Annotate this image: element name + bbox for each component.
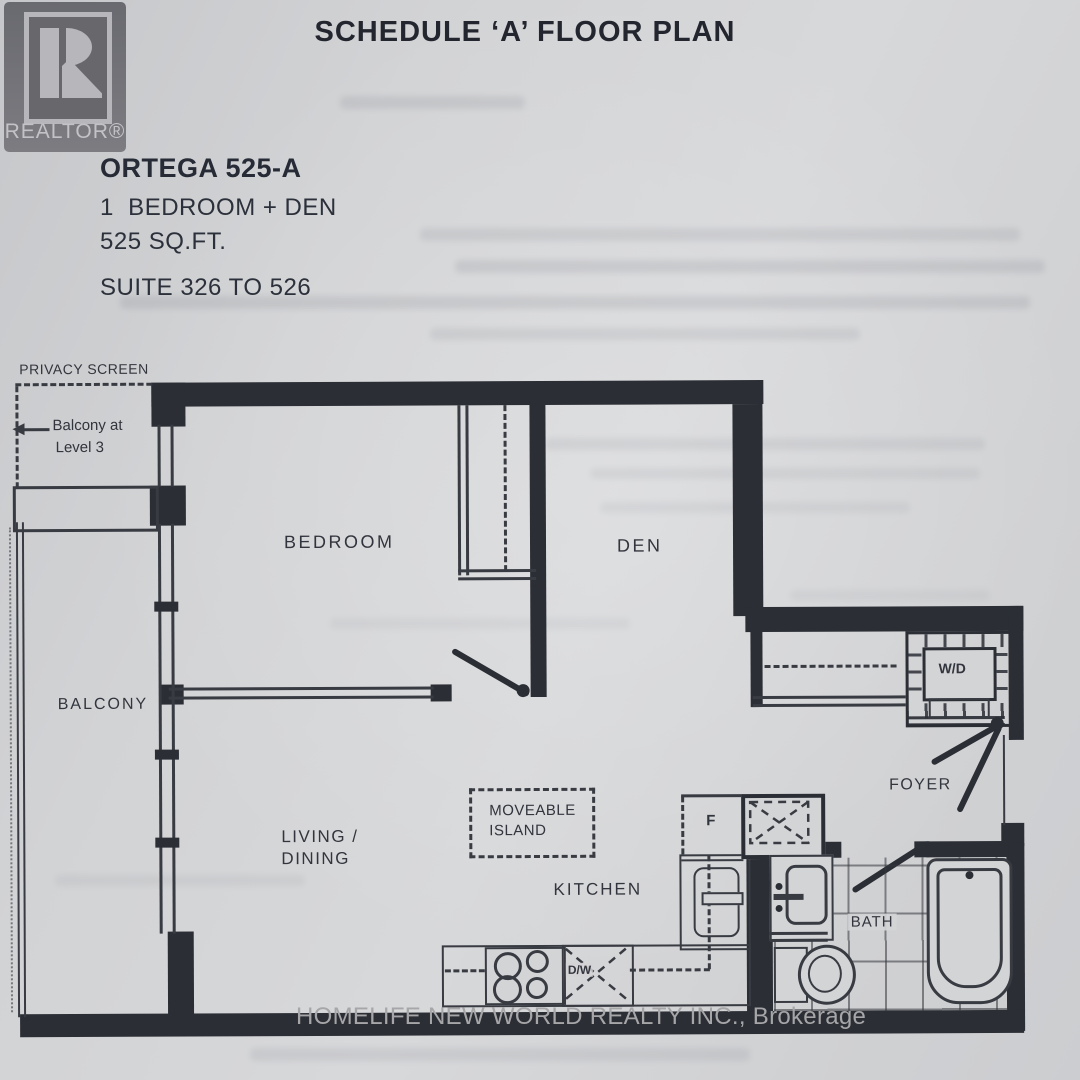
wall-top (151, 380, 763, 407)
privacy-screen-line-top (15, 383, 152, 387)
wd-label: W/D (939, 660, 966, 676)
shaft-x-mark (745, 798, 813, 847)
toilet-seat (808, 955, 842, 993)
balcony-arrow-head (12, 423, 24, 435)
island-label-line2: ISLAND (489, 822, 546, 839)
stove-burner (493, 975, 522, 1004)
bathtub (926, 858, 1013, 1004)
fridge-label: F (706, 812, 715, 829)
wall-den-east (732, 404, 763, 616)
privacy-screen-label: PRIVACY SCREEN (19, 361, 148, 378)
island-label-line1: MOVEABLE (489, 802, 576, 819)
window-mullion (155, 838, 179, 848)
living-dining-label-line2: DINING (281, 849, 350, 869)
dishwasher-label: D/W (566, 963, 593, 977)
living-dining-label-line1: LIVING / (281, 827, 358, 847)
scanned-floor-plan-page: REALTOR® SCHEDULE ‘A’ FLOOR PLAN ORTEGA … (0, 0, 1080, 1080)
balcony-level-label-line1: Balcony at (52, 417, 122, 434)
bathtub-inner (936, 868, 1003, 988)
foyer-closet-front (753, 695, 906, 707)
brokerage-watermark: HOMELIFE NEW WORLD REALTY INC., Brokerag… (296, 1003, 866, 1031)
balcony-rail-dots (9, 527, 13, 1012)
bedroom-closet-side (457, 405, 469, 575)
bathtub-drain (965, 871, 973, 879)
bath-faucet-dot (776, 905, 783, 912)
bedroom-label: BEDROOM (284, 532, 395, 553)
wall-top-left-corner (151, 383, 185, 427)
foyer-closet-rod (765, 664, 897, 668)
bath-faucet-dot (775, 883, 782, 890)
stove-burner (526, 977, 548, 999)
bath-faucet (774, 894, 804, 900)
entry-door-line (1003, 735, 1005, 825)
balcony-rail (16, 522, 26, 1017)
stove-burner (526, 950, 549, 973)
bedroom-closet-rod (503, 405, 507, 571)
window-lower (158, 524, 176, 934)
wall-bedroom-den (529, 403, 546, 697)
shaft-box (741, 794, 825, 859)
bedroom-door-hinge (517, 684, 530, 697)
bedroom-south-wall (169, 686, 434, 699)
wd-door (929, 698, 990, 718)
wd-hatch-top (908, 634, 1007, 647)
bath-label: BATH (848, 913, 897, 930)
kitchen-label: KITCHEN (553, 880, 642, 900)
balcony-label: BALCONY (58, 696, 149, 714)
wall-bath-top-right (926, 841, 1008, 857)
privacy-screen-line-left (15, 386, 18, 488)
floor-plan: D/W F (0, 0, 1080, 1080)
wall-window-bottom-block (168, 932, 194, 1024)
balcony-arrow-line (24, 428, 50, 431)
window-mullion (154, 602, 178, 612)
wall-foyer-top (745, 606, 1023, 632)
balcony-partition (13, 486, 159, 533)
den-label: DEN (617, 535, 663, 556)
balcony-level-label-line2: Level 3 (56, 439, 104, 456)
foyer-label: FOYER (889, 776, 952, 794)
window-mullion (155, 750, 179, 760)
wall-bedroom-door-jamb (431, 684, 452, 701)
bedroom-closet-front (458, 569, 536, 580)
wd-hatch-left (908, 646, 921, 704)
window-upper (157, 425, 173, 487)
bath-vanity-front (770, 932, 828, 942)
kitchen-faucet (702, 892, 744, 905)
